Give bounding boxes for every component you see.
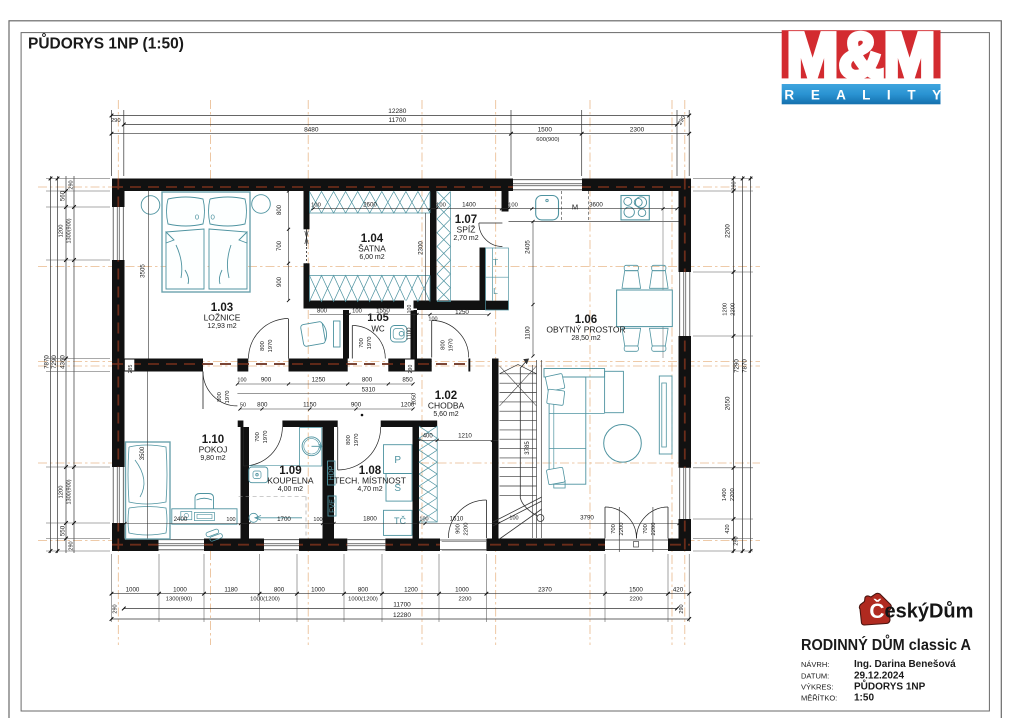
svg-text:50: 50 (240, 403, 246, 409)
svg-text:1970: 1970 (268, 340, 274, 353)
svg-text:2300: 2300 (630, 126, 645, 133)
svg-text:600(900): 600(900) (536, 137, 559, 143)
svg-text:1210: 1210 (458, 433, 472, 440)
svg-text:eskýDům: eskýDům (885, 601, 974, 623)
svg-text:1200: 1200 (59, 225, 65, 238)
svg-text:400: 400 (423, 434, 434, 440)
svg-text:100: 100 (407, 305, 413, 314)
svg-text:Ing. Darina Benešová: Ing. Darina Benešová (854, 659, 956, 670)
svg-text:100: 100 (508, 202, 518, 208)
svg-text:3600: 3600 (589, 201, 603, 208)
svg-text:12,93 m2: 12,93 m2 (207, 323, 236, 330)
svg-text:7870: 7870 (742, 359, 749, 373)
svg-text:1300(900): 1300(900) (67, 479, 73, 504)
svg-text:TČ: TČ (394, 516, 406, 526)
svg-text:NÁVRH:: NÁVRH: (801, 660, 829, 669)
svg-text:3505: 3505 (140, 264, 147, 278)
svg-text:1250: 1250 (312, 377, 326, 384)
svg-text:DATUM:: DATUM: (801, 672, 829, 681)
svg-text:L: L (493, 286, 498, 296)
svg-text:POKOJ: POKOJ (199, 445, 228, 455)
svg-text:900: 900 (261, 377, 272, 384)
svg-text:TECH. MÍSTNOST: TECH. MÍSTNOST (334, 476, 406, 486)
svg-text:700: 700 (643, 524, 649, 534)
svg-text:800: 800 (358, 587, 369, 594)
svg-text:290: 290 (69, 541, 75, 550)
svg-text:1300(900): 1300(900) (166, 597, 192, 603)
svg-text:290: 290 (408, 365, 414, 374)
svg-text:700: 700 (359, 338, 365, 348)
svg-text:VÝKRES:: VÝKRES: (801, 683, 834, 692)
svg-text:3785: 3785 (525, 441, 531, 455)
svg-text:420: 420 (673, 587, 684, 594)
svg-text:1970: 1970 (263, 431, 269, 444)
svg-text:2200: 2200 (730, 488, 736, 501)
svg-text:1200: 1200 (404, 587, 418, 594)
svg-text:2200: 2200 (464, 523, 470, 536)
svg-text:1000(1200): 1000(1200) (348, 597, 378, 603)
svg-text:PŮDORYS 1NP: PŮDORYS 1NP (854, 679, 926, 693)
svg-text:7870: 7870 (44, 355, 51, 369)
svg-text:800: 800 (217, 392, 223, 402)
svg-text:1800: 1800 (363, 515, 377, 522)
svg-text:R E A L I T Y: R E A L I T Y (784, 88, 947, 103)
svg-text:290: 290 (679, 604, 685, 613)
svg-text:ŠATNA: ŠATNA (358, 244, 386, 254)
svg-text:290: 290 (734, 536, 740, 545)
svg-text:900: 900 (456, 524, 462, 534)
svg-text:1970: 1970 (225, 391, 231, 404)
svg-text:560: 560 (60, 190, 67, 201)
svg-text:1150: 1150 (303, 402, 317, 409)
svg-text:800: 800 (346, 435, 352, 445)
svg-text:800: 800 (260, 341, 266, 351)
svg-text:285: 285 (128, 365, 134, 374)
svg-text:2200: 2200 (731, 303, 737, 316)
svg-text:1610: 1610 (450, 515, 464, 522)
svg-text:100: 100 (352, 308, 362, 314)
svg-text:1050: 1050 (412, 393, 418, 405)
svg-text:100: 100 (419, 516, 428, 522)
svg-text:1180: 1180 (224, 587, 238, 594)
svg-text:2300: 2300 (418, 241, 425, 255)
svg-text:2370: 2370 (538, 587, 552, 594)
svg-text:100: 100 (509, 515, 518, 521)
svg-text:1400: 1400 (722, 488, 728, 501)
svg-text:1000: 1000 (173, 587, 187, 594)
svg-text:1970: 1970 (354, 434, 360, 447)
svg-text:2400: 2400 (174, 516, 188, 523)
svg-text:5,60 m2: 5,60 m2 (433, 411, 458, 418)
svg-text:4,00 m2: 4,00 m2 (278, 486, 303, 493)
svg-text:1300(900): 1300(900) (67, 218, 73, 243)
svg-text:P: P (394, 455, 401, 466)
svg-text:100: 100 (311, 202, 321, 208)
svg-text:2,70 m2: 2,70 m2 (453, 235, 478, 242)
svg-text:11700: 11700 (393, 601, 411, 608)
svg-text:1:50: 1:50 (854, 693, 874, 704)
svg-text:290: 290 (113, 604, 119, 613)
svg-text:1970: 1970 (367, 337, 373, 350)
svg-text:3790: 3790 (580, 514, 594, 521)
svg-text:700: 700 (611, 524, 617, 534)
svg-text:2405: 2405 (525, 240, 532, 254)
svg-text:6,00 m2: 6,00 m2 (359, 254, 384, 261)
svg-text:1000: 1000 (311, 587, 325, 594)
svg-text:700: 700 (255, 432, 261, 442)
svg-text:SPÍŽ: SPÍŽ (457, 225, 476, 235)
svg-text:800: 800 (277, 204, 283, 215)
svg-text:12280: 12280 (393, 612, 411, 619)
svg-text:5310: 5310 (362, 386, 376, 393)
svg-text:420: 420 (725, 524, 731, 533)
svg-text:1100: 1100 (407, 327, 413, 341)
svg-text:4,70 m2: 4,70 m2 (357, 486, 382, 493)
svg-text:900: 900 (277, 276, 283, 287)
svg-text:1500: 1500 (629, 587, 643, 594)
svg-text:12280: 12280 (388, 108, 406, 115)
svg-text:7290: 7290 (51, 355, 58, 369)
svg-text:290: 290 (111, 118, 121, 124)
svg-text:1700: 1700 (277, 516, 291, 523)
svg-text:2200: 2200 (619, 523, 625, 536)
svg-text:T: T (493, 257, 498, 267)
svg-text:29.12.2024: 29.12.2024 (854, 671, 904, 682)
svg-text:4360: 4360 (60, 355, 67, 369)
svg-text:2650: 2650 (725, 396, 732, 410)
svg-text:800: 800 (257, 402, 268, 409)
svg-text:1100: 1100 (525, 326, 532, 340)
svg-text:800: 800 (362, 377, 373, 384)
svg-text:11700: 11700 (389, 117, 407, 124)
svg-text:1970: 1970 (449, 339, 455, 352)
svg-text:100: 100 (313, 517, 322, 523)
svg-text:100: 100 (428, 317, 437, 323)
svg-text:800: 800 (274, 587, 285, 594)
svg-text:850: 850 (402, 377, 413, 384)
svg-text:1550: 1550 (376, 307, 390, 314)
svg-text:800: 800 (317, 308, 328, 314)
svg-text:CHODBA: CHODBA (428, 401, 465, 411)
svg-text:100: 100 (226, 517, 235, 523)
svg-text:M: M (572, 203, 578, 212)
svg-text:1000(1200): 1000(1200) (250, 597, 280, 603)
svg-text:7290: 7290 (734, 359, 741, 373)
svg-text:2200: 2200 (630, 597, 643, 603)
svg-text:OBYTNÝ PROSTOR: OBYTNÝ PROSTOR (546, 325, 625, 335)
svg-text:100: 100 (237, 378, 246, 384)
svg-text:KOUPELNA: KOUPELNA (267, 476, 314, 486)
svg-text:1200: 1200 (59, 486, 65, 499)
svg-text:PŮDORYS 1NP (1:50): PŮDORYS 1NP (1:50) (28, 34, 184, 53)
svg-text:2200: 2200 (725, 224, 732, 238)
svg-text:8480: 8480 (304, 126, 319, 133)
svg-text:100: 100 (436, 202, 446, 208)
svg-text:WC: WC (371, 325, 385, 334)
svg-text:1000: 1000 (126, 587, 140, 594)
svg-text:2200: 2200 (651, 523, 657, 536)
svg-text:2600: 2600 (363, 201, 377, 208)
svg-text:1400: 1400 (462, 201, 476, 208)
svg-text:M&M: M&M (787, 20, 936, 92)
svg-text:3500: 3500 (140, 446, 146, 460)
svg-text:1000: 1000 (455, 587, 469, 594)
svg-text:RODINNÝ DŮM classic A: RODINNÝ DŮM classic A (801, 635, 971, 654)
svg-text:290: 290 (732, 181, 738, 190)
svg-text:LOŽNICE: LOŽNICE (204, 313, 241, 323)
svg-text:1200: 1200 (723, 303, 729, 316)
svg-text:9,80 m2: 9,80 m2 (200, 455, 225, 462)
svg-text:28,50 m2: 28,50 m2 (571, 335, 600, 342)
svg-text:550: 550 (60, 525, 67, 536)
svg-text:1500: 1500 (538, 126, 553, 133)
svg-text:800: 800 (441, 340, 447, 350)
svg-text:Č: Č (869, 599, 884, 623)
svg-text:700: 700 (277, 240, 283, 251)
svg-text:900: 900 (351, 402, 362, 409)
svg-text:FVE: FVE (330, 499, 337, 513)
svg-text:1250: 1250 (455, 309, 469, 316)
svg-text:2200: 2200 (459, 597, 472, 603)
svg-text:290: 290 (69, 180, 75, 189)
svg-text:MĚŘÍTKO:: MĚŘÍTKO: (801, 694, 837, 703)
